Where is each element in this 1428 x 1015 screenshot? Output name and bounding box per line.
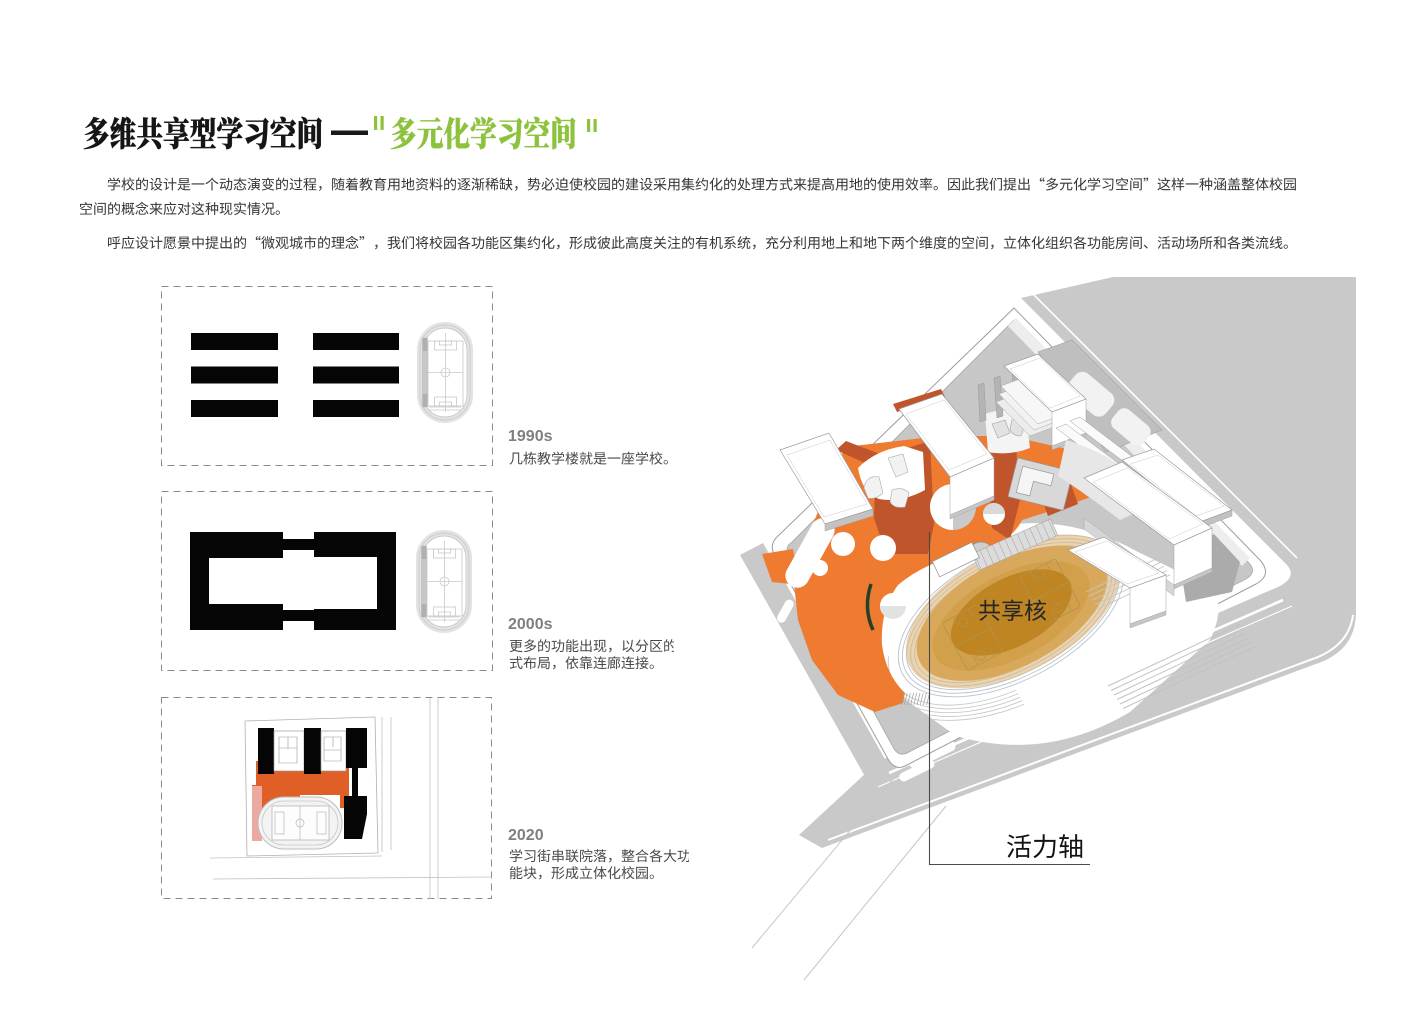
svg-text:2020: 2020 bbox=[508, 827, 544, 844]
svg-text:1990s: 1990s bbox=[508, 428, 553, 445]
svg-text:2000s: 2000s bbox=[508, 616, 553, 633]
